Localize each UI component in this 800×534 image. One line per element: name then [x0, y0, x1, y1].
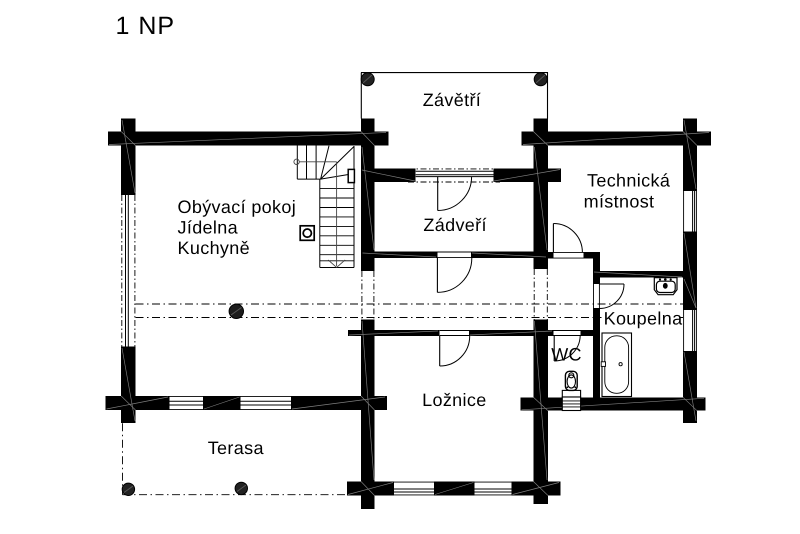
svg-text:Technická: Technická	[587, 171, 671, 191]
svg-text:Terasa: Terasa	[208, 438, 265, 458]
svg-text:Ložnice: Ložnice	[422, 390, 487, 410]
svg-text:Kuchyně: Kuchyně	[178, 238, 251, 258]
svg-text:Obývací pokoj: Obývací pokoj	[178, 197, 297, 217]
svg-text:Jídelna: Jídelna	[178, 218, 239, 238]
svg-text:Závětří: Závětří	[423, 90, 481, 110]
svg-text:WC: WC	[551, 345, 582, 365]
svg-text:místnost: místnost	[584, 191, 655, 211]
svg-text:1 NP: 1 NP	[116, 12, 176, 40]
svg-text:Zádveří: Zádveří	[423, 215, 486, 235]
svg-text:Koupelna: Koupelna	[604, 308, 684, 328]
